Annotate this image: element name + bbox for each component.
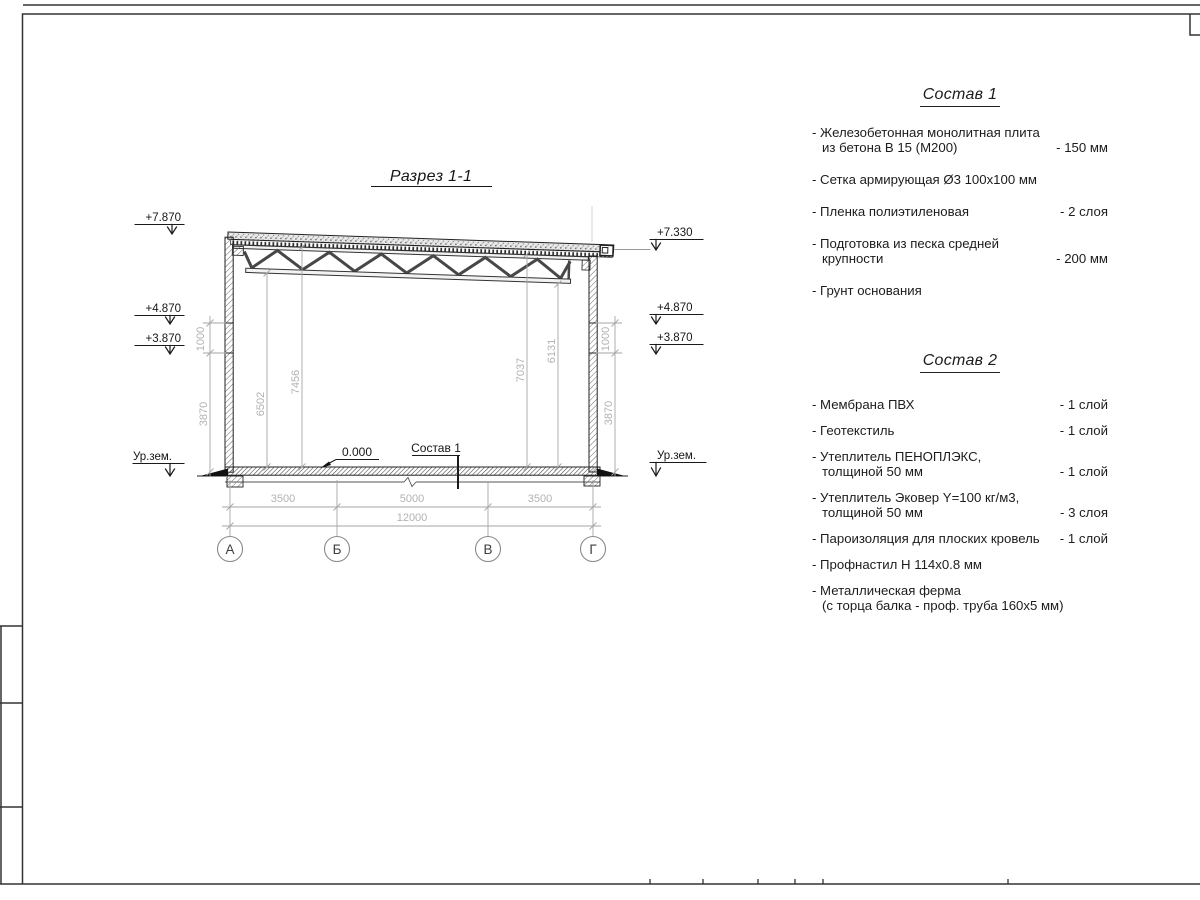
axis-label-v: В [483,542,492,557]
material-item: - Мембрана ПВХ- 1 слой [812,397,1108,412]
material-item-text: - Геотекстиль [812,423,1060,438]
dim-total: 12000 [397,512,428,524]
material-item-text: - Профнастил Н 114х0.8 мм [812,557,1066,572]
axis-label-g: Г [589,542,597,557]
material-item-text: - Пароизоляция для плоских кровель [812,531,1060,546]
right-wall [589,256,597,472]
elevation-4870-left: +4.870 [146,303,182,315]
dim-interior-1: 6502 [255,392,267,416]
floor-slab [225,467,600,475]
floor-composition-label: Состав 1 [411,441,461,455]
dim-left-wall-1000: 1000 [195,327,207,351]
elevation-3870-right: +3.870 [657,332,693,344]
dim-span-1: 3500 [271,493,295,505]
span-dim-lines [222,480,601,536]
material-item-qty: - 2 слоя [1060,204,1108,219]
corner-stamp-box [1190,14,1200,35]
material-item-qty: - 150 мм [1056,140,1108,155]
material-item-text: - Пленка полиэтиленовая [812,204,1060,219]
material-item: - Утеплитель ПЕНОПЛЭКС,толщиной 50 мм- 1… [812,449,1108,479]
elevation-marks-right: +7.330 +4.870 +3.870 Ур.зем. [615,227,706,476]
material-item: - Утеплитель Эковер Y=100 кг/м3,толщиной… [812,490,1108,520]
ground-wedge-right [597,469,625,477]
material-item: - Геотекстиль- 1 слой [812,423,1108,438]
dim-right-wall-1000: 1000 [600,327,612,351]
dim-interior-2: 7456 [290,370,302,394]
material-item-text: - Подготовка из песка среднейкрупности [812,236,1056,266]
composition-1-items: - Железобетонная монолитная плитаиз бето… [812,125,1108,298]
ground-wedge-left [200,469,228,477]
composition-2-title: Состав 2 [920,352,1001,373]
material-item-qty: - 1 слой [1060,531,1108,546]
composition-2-items: - Мембрана ПВХ- 1 слой- Геотекстиль- 1 с… [812,397,1108,613]
material-item: - Сетка армирующая Ø3 100х100 мм [812,172,1108,187]
material-item-text: - Утеплитель Эковер Y=100 кг/м3,толщиной… [812,490,1060,520]
composition-1-title: Состав 1 [920,86,1001,107]
composition-list-2: Состав 2 - Мембрана ПВХ- 1 слой- Геотекс… [812,352,1108,624]
material-item-qty: - 1 слой [1060,397,1108,412]
material-item: - Металлическая ферма(с торца балка - пр… [812,583,1108,613]
material-item-text: - Сетка армирующая Ø3 100х100 мм [812,172,1066,187]
material-item-qty: - 3 слоя [1060,505,1108,520]
truss-end-post [569,261,570,280]
material-item: - Железобетонная монолитная плитаиз бето… [812,125,1108,155]
material-item-text: - Металлическая ферма(с торца балка - пр… [812,583,1066,613]
material-item: - Пленка полиэтиленовая- 2 слоя [812,204,1108,219]
material-item-text: - Железобетонная монолитная плитаиз бето… [812,125,1056,155]
composition-2-header: Состав 2 [812,352,1108,373]
elevation-3870-left: +3.870 [146,333,182,345]
dim-span-3: 3500 [528,493,552,505]
elevation-7330: +7.330 [657,227,693,239]
section-title: Разрез 1-1 [390,168,472,185]
elevation-7870: +7.870 [146,212,182,224]
material-item-qty: - 1 слой [1060,464,1108,479]
dim-interior-3: 7037 [515,358,527,382]
foundation-left [227,476,243,487]
elevation-4870-right: +4.870 [657,302,693,314]
axis-label-a: А [225,542,234,557]
material-item-text: - Грунт основания [812,283,1066,298]
composition-list-1: Состав 1 - Железобетонная монолитная пли… [812,86,1108,315]
composition-1-header: Состав 1 [812,86,1108,107]
material-item-text: - Утеплитель ПЕНОПЛЭКС,толщиной 50 мм [812,449,1060,479]
material-item-qty: - 1 слой [1060,423,1108,438]
truss-left-bearing [232,246,243,255]
dim-span-2: 5000 [400,493,424,505]
material-item: - Грунт основания [812,283,1108,298]
axis-label-b: Б [333,542,342,557]
dim-interior-4: 6131 [546,339,558,363]
zero-level: 0.000 [342,445,372,459]
ground-level-left: Ур.зем. [133,451,172,463]
ground-level-right: Ур.зем. [657,450,696,462]
elevation-marks-left: +7.870 +4.870 +3.870 Ур.зем. [133,212,184,476]
left-wall [225,237,233,472]
material-item: - Подготовка из песка среднейкрупности- … [812,236,1108,266]
dim-left-wall-3870: 3870 [198,402,210,426]
foundation-right [584,476,600,486]
dim-right-wall-3870: 3870 [603,401,615,425]
axis-bubbles: А Б В Г [218,537,606,562]
roof-assembly [227,232,614,285]
subfloor-line [225,478,600,487]
material-item-text: - Мембрана ПВХ [812,397,1060,412]
material-item: - Пароизоляция для плоских кровель- 1 сл… [812,531,1108,546]
material-item-qty: - 200 мм [1056,251,1108,266]
edge-beam-inner [602,247,608,253]
material-item: - Профнастил Н 114х0.8 мм [812,557,1108,572]
